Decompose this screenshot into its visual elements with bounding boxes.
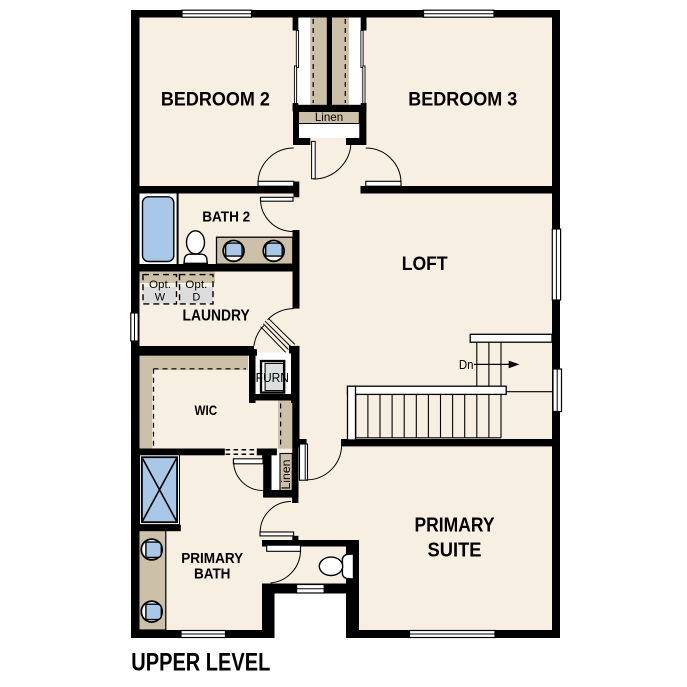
svg-text:SUITE: SUITE bbox=[428, 540, 482, 562]
svg-text:PRIMARY: PRIMARY bbox=[415, 515, 496, 537]
svg-text:Opt.: Opt. bbox=[149, 279, 171, 291]
svg-text:LOFT: LOFT bbox=[402, 254, 448, 275]
svg-text:BEDROOM 2: BEDROOM 2 bbox=[161, 89, 270, 111]
svg-text:UPPER LEVEL: UPPER LEVEL bbox=[131, 648, 270, 676]
svg-text:Opt.: Opt. bbox=[185, 279, 207, 291]
svg-text:D: D bbox=[192, 291, 200, 303]
svg-text:BEDROOM 3: BEDROOM 3 bbox=[408, 89, 517, 111]
svg-text:BATH: BATH bbox=[194, 567, 231, 583]
svg-text:LAUNDRY: LAUNDRY bbox=[183, 308, 251, 325]
svg-text:W: W bbox=[155, 291, 166, 303]
svg-text:Linen: Linen bbox=[315, 110, 343, 124]
svg-text:Linen: Linen bbox=[279, 460, 293, 490]
svg-text:BATH 2: BATH 2 bbox=[202, 208, 250, 225]
svg-text:Dn: Dn bbox=[459, 358, 474, 372]
svg-text:WIC: WIC bbox=[195, 403, 218, 419]
svg-text:PRIMARY: PRIMARY bbox=[181, 551, 243, 567]
svg-text:FURN: FURN bbox=[256, 370, 289, 385]
